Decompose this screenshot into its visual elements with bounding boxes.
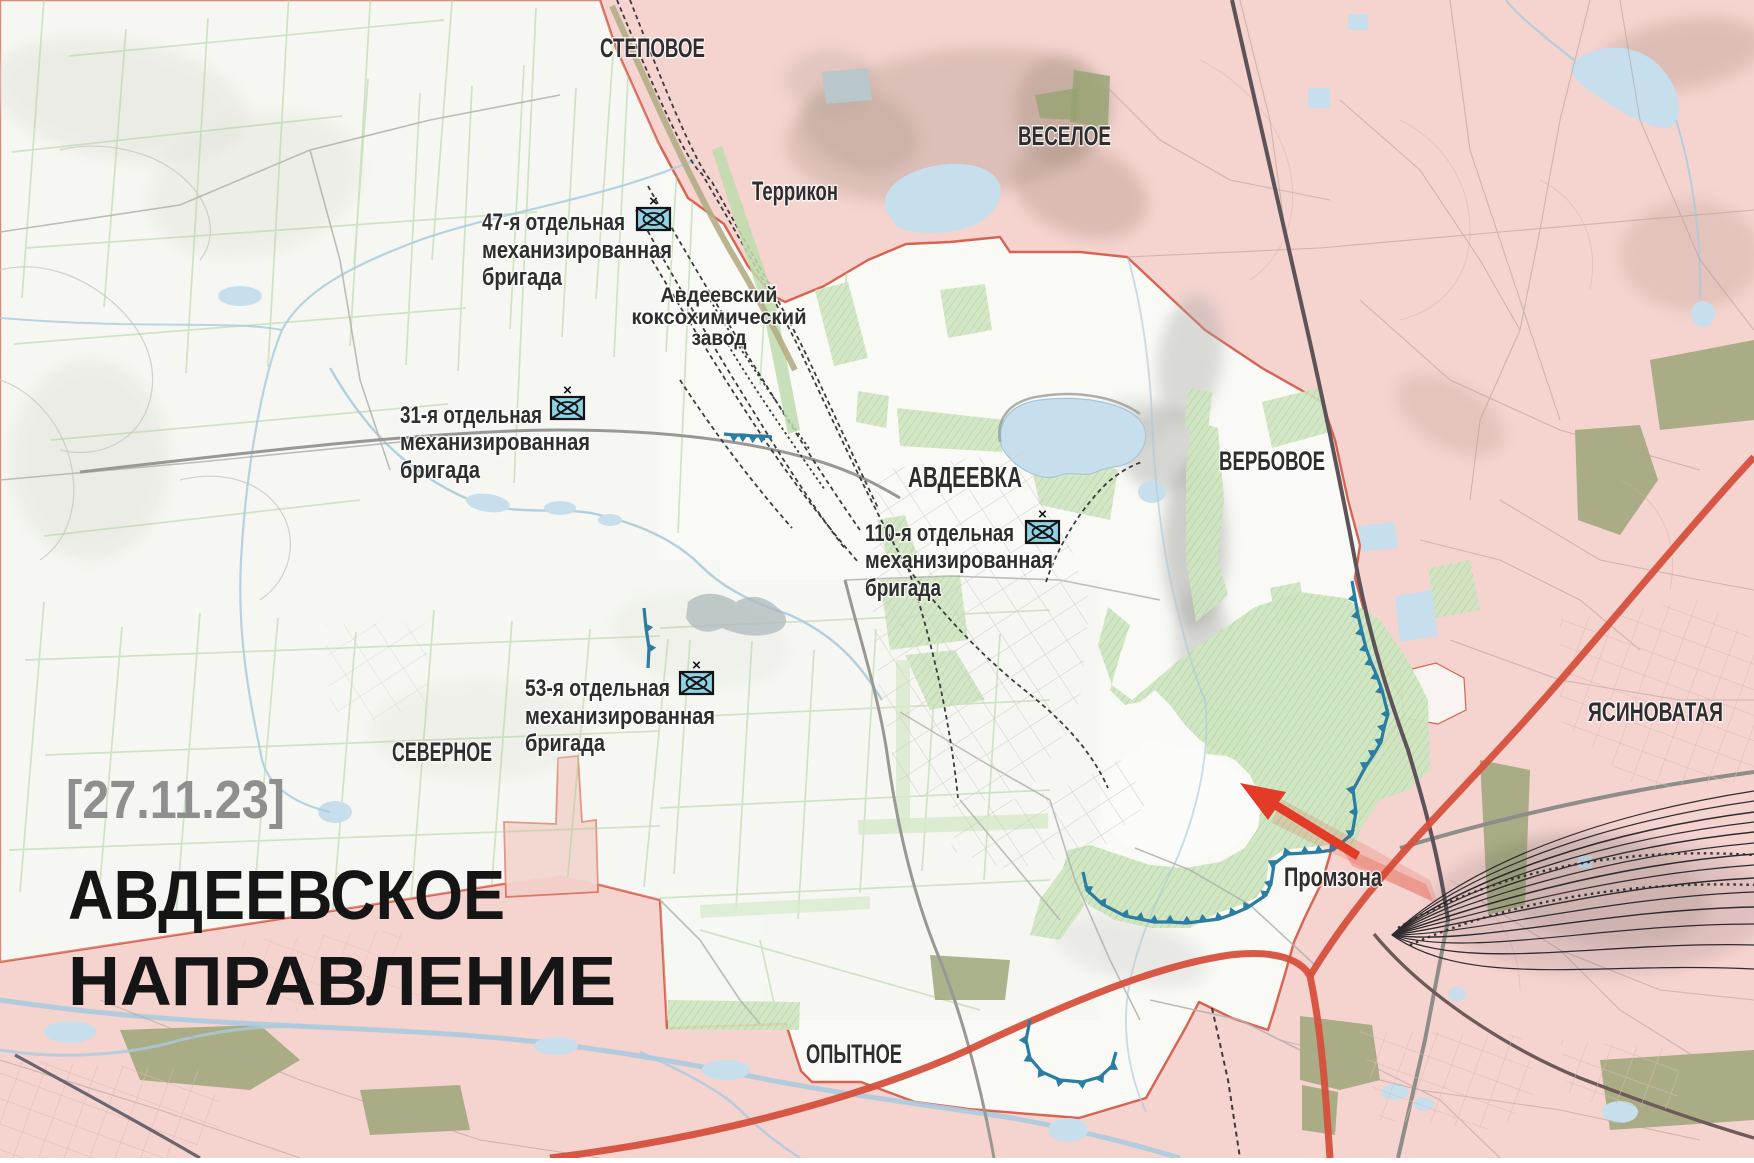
- svg-text:СЕВЕРНОЕ: СЕВЕРНОЕ: [392, 737, 492, 767]
- svg-text:31-я отдельная: 31-я отдельная: [400, 402, 542, 429]
- svg-text:механизированная: механизированная: [865, 547, 1053, 574]
- svg-text:механизированная: механизированная: [400, 429, 590, 456]
- svg-text:ОПЫТНОЕ: ОПЫТНОЕ: [806, 1039, 902, 1069]
- svg-text:110-я отдельная: 110-я отдельная: [865, 520, 1014, 547]
- svg-text:бригада: бригада: [525, 730, 606, 757]
- svg-text:механизированная: механизированная: [525, 703, 715, 730]
- svg-text:ВЕСЕЛОЕ: ВЕСЕЛОЕ: [1018, 121, 1111, 151]
- svg-text:47-я отдельная: 47-я отдельная: [482, 209, 625, 236]
- svg-text:Террикон: Террикон: [752, 176, 838, 206]
- svg-text:ЯСИНОВАТАЯ: ЯСИНОВАТАЯ: [1588, 697, 1723, 727]
- svg-text:СТЕПОВОЕ: СТЕПОВОЕ: [600, 33, 705, 63]
- svg-text:АВДЕЕВКА: АВДЕЕВКА: [908, 462, 1022, 494]
- svg-text:бригада: бригада: [482, 264, 563, 291]
- svg-text:53-я отдельная: 53-я отдельная: [525, 675, 670, 702]
- svg-text:бригада: бригада: [400, 457, 481, 484]
- svg-text:бригада: бригада: [865, 575, 942, 602]
- svg-text:АВДЕЕВСКОЕ: АВДЕЕВСКОЕ: [68, 856, 505, 934]
- svg-text:[27.11.23]: [27.11.23]: [66, 770, 285, 830]
- svg-text:ВЕРБОВОЕ: ВЕРБОВОЕ: [1219, 446, 1325, 476]
- svg-text:коксохимический: коксохимический: [632, 306, 807, 329]
- svg-text:механизированная: механизированная: [482, 237, 672, 264]
- svg-text:НАПРАВЛЕНИЕ: НАПРАВЛЕНИЕ: [68, 942, 616, 1020]
- svg-text:Промзона: Промзона: [1284, 862, 1383, 892]
- svg-text:завод: завод: [692, 327, 747, 350]
- svg-text:Авдеевский: Авдеевский: [661, 284, 778, 307]
